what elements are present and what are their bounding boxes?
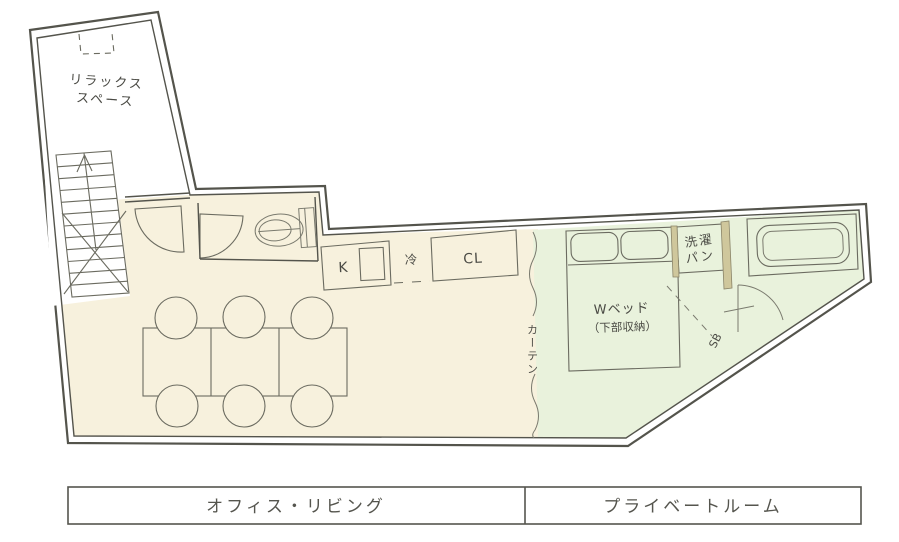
chair (223, 296, 265, 338)
skylight-dashed (79, 33, 114, 54)
legend-bar: オフィス・リビング プライベートルーム (68, 487, 861, 524)
curtain-label: カーテン (526, 324, 539, 376)
legend-office-living: オフィス・リビング (206, 497, 386, 517)
relax-space-label-2: スペース (76, 91, 135, 110)
closet-label: CL (463, 250, 483, 267)
chair (291, 385, 333, 427)
chair (155, 297, 197, 339)
bed-label-1: Wベッド (594, 301, 650, 318)
floorplan-page: リラックス スペース (0, 0, 899, 542)
kitchen-label: K (338, 260, 349, 277)
floorplan-svg: リラックス スペース (0, 0, 899, 542)
chair (291, 297, 333, 339)
legend-private-room: プライベートルーム (603, 497, 783, 517)
chair (223, 385, 265, 427)
bed-label-2: （下部収納） (588, 319, 657, 335)
fridge-label: 冷 (404, 252, 417, 268)
relax-space-label-1: リラックス (69, 72, 144, 92)
chair (156, 385, 198, 427)
